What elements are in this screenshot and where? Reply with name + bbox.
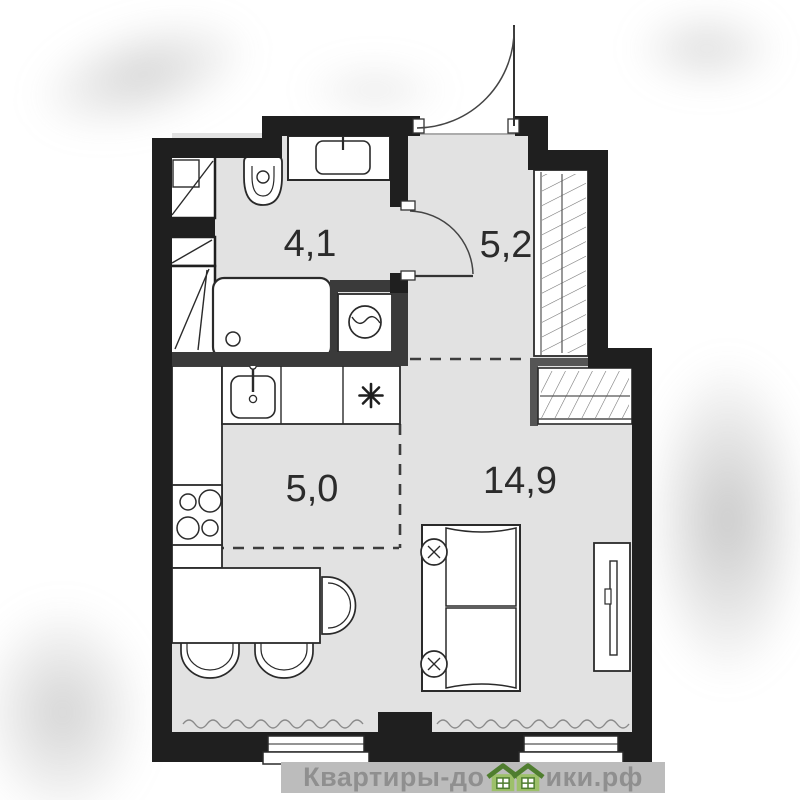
wardrobe-niche: [530, 358, 632, 426]
watermark-banner: Квартиры-до ики.рф: [281, 762, 665, 793]
entrance-door: [413, 25, 519, 134]
room-label-kitchen: 5,0: [286, 468, 339, 510]
bathtub: [213, 278, 331, 358]
toilet: [244, 157, 282, 205]
watermark-text-prefix: Квартиры-до: [303, 764, 484, 791]
house-icon: [511, 762, 545, 792]
watermark-text-suffix: ики.рф: [546, 764, 643, 791]
vanity-sink: [288, 133, 390, 180]
window: [263, 736, 369, 764]
room-label-hallway: 5,2: [480, 224, 533, 266]
stove-burners: [172, 485, 222, 545]
washing-machine: [330, 280, 392, 358]
wardrobe-tall: [534, 170, 588, 356]
sofa: [421, 525, 520, 691]
stove-mark-asterisk: [360, 384, 383, 407]
room-label-living-room: 14,9: [483, 460, 557, 502]
room-label-bathroom: 4,1: [284, 223, 337, 265]
tv-stand: [594, 543, 630, 671]
floor-plan-page: 4,1 5,2 5,0 14,9 Квартиры-до ик: [0, 0, 800, 800]
floor-plan-drawing: 4,1 5,2 5,0 14,9: [0, 0, 800, 800]
window: [519, 736, 623, 764]
watermark-houses: [486, 762, 545, 792]
vent-shaft: [170, 156, 215, 354]
